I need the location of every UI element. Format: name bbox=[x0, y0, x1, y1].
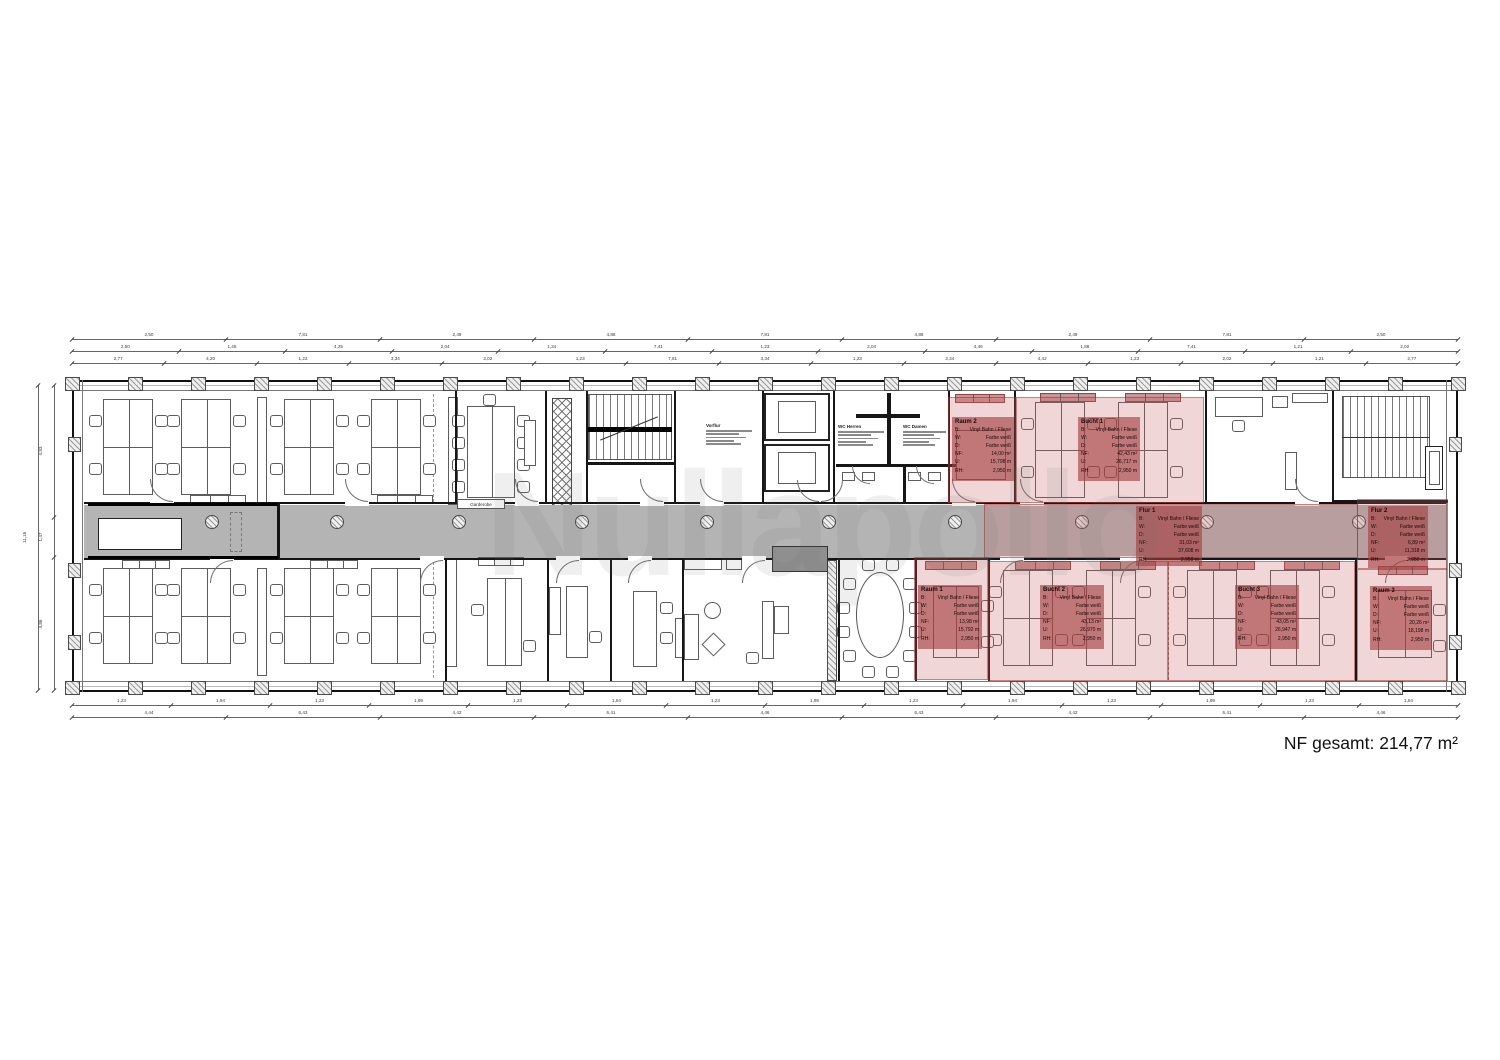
door-arc bbox=[420, 560, 443, 583]
chair bbox=[89, 584, 102, 596]
dim-value: 2,49 bbox=[996, 333, 1150, 339]
desk-divider bbox=[372, 447, 420, 448]
column-pier bbox=[695, 377, 710, 391]
chair bbox=[89, 415, 102, 427]
door-arc bbox=[640, 479, 663, 502]
zone-spec-row: NF:43,13 m² bbox=[1043, 620, 1101, 625]
corridor-column bbox=[452, 515, 466, 529]
column-pier bbox=[947, 377, 962, 391]
dim-value: 1,94 bbox=[567, 699, 666, 705]
column-pier bbox=[1449, 635, 1462, 650]
dim-value: 2,34 bbox=[904, 357, 996, 363]
shelf-divider bbox=[327, 561, 328, 568]
column-pier bbox=[821, 377, 836, 391]
zone-spec-row: U:26,717 m bbox=[1081, 460, 1137, 465]
column-pier bbox=[254, 681, 269, 695]
desk-divider bbox=[182, 616, 230, 617]
dim-value: 7,81 bbox=[1150, 333, 1304, 339]
door-arc bbox=[345, 479, 368, 502]
zone-spec-row: D:Farbe weiß bbox=[1238, 612, 1296, 617]
door-arc bbox=[797, 480, 819, 502]
wc-wall bbox=[903, 464, 906, 504]
zone-spec-row: U:15,798 m bbox=[955, 460, 1011, 465]
dim-value: 2,49 bbox=[380, 333, 534, 339]
dim-value: 4,42 bbox=[996, 357, 1088, 363]
column-pier bbox=[884, 681, 899, 695]
zone-spec-row: B:Vinyl Bahn / Fliese bbox=[1139, 517, 1199, 522]
zone-spec-row: U:37,608 m bbox=[1139, 549, 1199, 554]
zone-name: Raum 1 bbox=[921, 587, 979, 593]
chair bbox=[886, 666, 899, 678]
room-spec-bar bbox=[838, 434, 871, 436]
column-pier bbox=[1010, 681, 1025, 695]
door-arc bbox=[1295, 479, 1318, 502]
chair bbox=[167, 415, 180, 427]
desk bbox=[566, 586, 588, 658]
dim-value: 1,23 bbox=[72, 699, 171, 705]
interior-wall bbox=[547, 559, 549, 681]
column-pier bbox=[1073, 681, 1088, 695]
interior-wall bbox=[445, 559, 447, 681]
column-pier bbox=[632, 681, 647, 695]
zone-spec-row: W:Farbe weiß bbox=[1139, 525, 1199, 530]
room-spec-bar bbox=[903, 431, 946, 433]
dim-tick bbox=[52, 688, 57, 693]
room-spec-bar bbox=[706, 437, 746, 439]
zone-spec-row: RH:2,950 m bbox=[1371, 558, 1425, 563]
column-pier bbox=[68, 437, 81, 452]
zone-spec-row: D:Farbe weiß bbox=[1139, 533, 1199, 538]
dim-value: 7,41 bbox=[1138, 345, 1245, 351]
chair bbox=[1232, 420, 1245, 432]
column-pier bbox=[1199, 377, 1214, 391]
column-pier bbox=[506, 377, 521, 391]
dim-value: 4,83 bbox=[39, 446, 59, 456]
dim-value: 1,94 bbox=[1359, 699, 1458, 705]
column-pier bbox=[65, 377, 80, 391]
interior-wall bbox=[674, 391, 676, 503]
zone-spec-row: NF:43,05 m² bbox=[1238, 620, 1296, 625]
zone-name: Raum 3 bbox=[1373, 588, 1429, 594]
sideboard bbox=[310, 560, 358, 569]
column-pier bbox=[506, 681, 521, 695]
door-arc bbox=[150, 479, 173, 502]
dim-value: 3,34 bbox=[719, 357, 811, 363]
dim-value: 6,43 bbox=[842, 711, 996, 717]
dim-value: 1,46 bbox=[179, 345, 286, 351]
dim-line bbox=[72, 351, 1458, 352]
desk bbox=[1215, 397, 1263, 417]
dim-value: 2,04 bbox=[818, 345, 925, 351]
corridor-column bbox=[700, 515, 714, 529]
desk-divider bbox=[104, 616, 152, 617]
column-pier bbox=[758, 377, 773, 391]
zone-label-raum1: Raum 1B:Vinyl Bahn / FlieseW:Farbe weißD… bbox=[918, 585, 982, 649]
equipment-marker bbox=[230, 512, 242, 552]
dim-value: 6,43 bbox=[226, 711, 380, 717]
column-pier bbox=[128, 681, 143, 695]
chair bbox=[357, 415, 370, 427]
column-pier bbox=[254, 377, 269, 391]
interior-wall bbox=[586, 391, 588, 503]
tall-cabinet bbox=[552, 398, 572, 506]
zone-spec-row: B:Vinyl Bahn / Fliese bbox=[1373, 597, 1429, 602]
corridor-column bbox=[822, 515, 836, 529]
chair bbox=[336, 463, 349, 475]
armchair bbox=[701, 632, 725, 656]
dim-value: 4,42 bbox=[996, 711, 1150, 717]
shelf-divider bbox=[343, 561, 344, 568]
chair bbox=[336, 632, 349, 644]
dim-value: 1,88 bbox=[1032, 345, 1139, 351]
interior-wall bbox=[586, 462, 676, 465]
desk-divider bbox=[285, 447, 333, 448]
column-pier bbox=[1262, 377, 1277, 391]
room-label-wc_damen: WC Damen bbox=[903, 424, 953, 464]
desk bbox=[487, 578, 522, 666]
zone-spec-row: W:Farbe weiß bbox=[1043, 604, 1101, 609]
sideboard bbox=[122, 560, 170, 569]
zone-spec-row: U:26,947 m bbox=[1238, 628, 1296, 633]
cabinet bbox=[762, 601, 774, 659]
column-pier bbox=[1449, 437, 1462, 452]
dim-value: 7,81 bbox=[626, 357, 718, 363]
zone-spec-row: NF:42,43 m² bbox=[1081, 452, 1137, 457]
chair bbox=[167, 463, 180, 475]
corridor-column bbox=[205, 515, 219, 529]
room-spec-bar bbox=[838, 444, 873, 446]
chair bbox=[270, 584, 283, 596]
dim-value: 1,99 bbox=[1161, 699, 1260, 705]
column-pier bbox=[317, 377, 332, 391]
chair bbox=[89, 632, 102, 644]
zone-spec-row: W:Farbe weiß bbox=[1081, 436, 1137, 441]
virtual-divider bbox=[433, 394, 435, 502]
desk-cluster bbox=[284, 399, 334, 495]
room-spec-bar bbox=[706, 430, 752, 432]
corridor-column bbox=[575, 515, 589, 529]
dim-value: 4,20 bbox=[164, 357, 256, 363]
zone-name: Raum 2 bbox=[955, 419, 1011, 425]
zone-spec-row: RH:2,950 m bbox=[1139, 558, 1199, 563]
chair bbox=[270, 463, 283, 475]
column-pier bbox=[1136, 681, 1151, 695]
room-label-text: WC Herren bbox=[838, 424, 892, 429]
duct-block bbox=[772, 546, 828, 572]
chair bbox=[167, 584, 180, 596]
chair bbox=[167, 632, 180, 644]
door-arc bbox=[821, 480, 843, 502]
elevator-car bbox=[778, 401, 816, 433]
room-label-wc_herren: WC Herren bbox=[838, 424, 892, 464]
corridor-column bbox=[948, 515, 962, 529]
chair bbox=[452, 415, 465, 427]
garderobe-label: Garderobe bbox=[457, 499, 505, 509]
chair bbox=[589, 631, 602, 643]
dim-value: 1,21 bbox=[1245, 345, 1352, 351]
column-pier bbox=[1199, 681, 1214, 695]
zone-spec-row: W:Farbe weiß bbox=[1371, 525, 1425, 530]
chair bbox=[660, 632, 673, 644]
column-pier bbox=[1262, 681, 1277, 695]
room-spec-bar bbox=[706, 440, 734, 442]
desk-cluster bbox=[181, 399, 231, 495]
dim-value: 1,99 bbox=[765, 699, 864, 705]
chair bbox=[862, 666, 875, 678]
stair-rail bbox=[1342, 437, 1430, 438]
column-pier bbox=[443, 681, 458, 695]
dim-value: 2,02 bbox=[1181, 357, 1273, 363]
column-pier bbox=[68, 635, 81, 650]
chair bbox=[471, 604, 484, 616]
chair bbox=[843, 650, 856, 662]
cabinet bbox=[524, 420, 536, 466]
zone-spec-row: RH:2,950 m bbox=[955, 469, 1011, 474]
dim-value: 1,23 bbox=[1260, 699, 1359, 705]
chair bbox=[233, 632, 246, 644]
dim-value: 7,81 bbox=[688, 333, 842, 339]
dim-value: 1,94 bbox=[963, 699, 1062, 705]
zone-spec-row: U:11,318 m bbox=[1371, 549, 1425, 554]
zone-spec-row: RH:2,950 m bbox=[1373, 638, 1429, 643]
chair bbox=[357, 584, 370, 596]
column-pier bbox=[1451, 681, 1466, 695]
chair bbox=[452, 481, 465, 493]
chair bbox=[746, 652, 759, 664]
door-arc bbox=[210, 560, 233, 583]
coffee-table bbox=[704, 602, 721, 619]
wall-line bbox=[82, 380, 83, 692]
column-pier bbox=[1325, 377, 1340, 391]
zone-spec-row: NF:20,26 m² bbox=[1373, 621, 1429, 626]
dim-value: 7,81 bbox=[226, 333, 380, 339]
chair bbox=[233, 463, 246, 475]
dim-tick bbox=[36, 688, 41, 693]
column-pier bbox=[191, 681, 206, 695]
zone-label-flur1: Flur 1B:Vinyl Bahn / FlieseW:Farbe weißD… bbox=[1136, 506, 1202, 566]
column-pier bbox=[380, 681, 395, 695]
interior-wall bbox=[455, 391, 457, 503]
column-pier bbox=[1325, 681, 1340, 695]
dim-value: 4,88 bbox=[842, 333, 996, 339]
zone-spec-row: B:Vinyl Bahn / Fliese bbox=[1081, 428, 1137, 433]
copier-room-wall bbox=[277, 504, 280, 560]
column-pier bbox=[1010, 377, 1025, 391]
floorplan-canvas: Nullapollo 2,507,812,494,887,814,882,497… bbox=[0, 0, 1500, 1060]
room-spec-bar bbox=[706, 433, 739, 435]
desk-divider bbox=[372, 616, 420, 617]
zone-label-bucht3: Bucht 3B:Vinyl Bahn / FlieseW:Farbe weiß… bbox=[1235, 585, 1299, 649]
sofa bbox=[684, 614, 699, 660]
door-arc bbox=[742, 560, 765, 583]
column-pier bbox=[191, 377, 206, 391]
dim-value: 4,44 bbox=[72, 711, 226, 717]
dim-value: 2,77 bbox=[72, 357, 164, 363]
wall-shelf bbox=[1292, 393, 1328, 403]
chair bbox=[270, 632, 283, 644]
chair bbox=[886, 559, 899, 571]
dim-value: 1,23 bbox=[270, 699, 369, 705]
chair bbox=[423, 584, 436, 596]
column-pier bbox=[380, 377, 395, 391]
column-pier bbox=[884, 377, 899, 391]
desk-divider bbox=[104, 447, 152, 448]
column-pier bbox=[1136, 377, 1151, 391]
zone-spec-row: W:Farbe weiß bbox=[1238, 604, 1296, 609]
chair bbox=[862, 559, 875, 571]
dim-value: 1,23 bbox=[1062, 699, 1161, 705]
dim-value: 11,16 bbox=[23, 533, 43, 543]
column-pier bbox=[1388, 681, 1403, 695]
zone-spec-row: D:Farbe weiß bbox=[955, 444, 1011, 449]
dim-value: 4,86 bbox=[39, 619, 59, 629]
dim-value: 4,25 bbox=[285, 345, 392, 351]
dim-value: 4,46 bbox=[925, 345, 1032, 351]
shelf-divider bbox=[139, 561, 140, 568]
column-pier bbox=[128, 377, 143, 391]
column-pier bbox=[317, 681, 332, 695]
zone-spec-row: NF:6,89 m² bbox=[1371, 541, 1425, 546]
column-pier bbox=[1451, 377, 1466, 391]
room-spec-bar bbox=[838, 438, 878, 440]
desk-divider bbox=[182, 447, 230, 448]
desk-divider bbox=[285, 616, 333, 617]
room-spec-bar bbox=[903, 444, 935, 446]
room-spec-bar bbox=[903, 441, 929, 443]
chair bbox=[423, 463, 436, 475]
dim-value: 2,04 bbox=[392, 345, 499, 351]
dim-line bbox=[72, 339, 1458, 340]
zone-spec-row: B:Vinyl Bahn / Fliese bbox=[921, 596, 979, 601]
table-line bbox=[492, 407, 493, 497]
zone-name: Flur 2 bbox=[1371, 508, 1425, 514]
chair bbox=[452, 459, 465, 471]
copier-room-wall bbox=[88, 556, 278, 559]
zone-spec-row: D:Farbe weiß bbox=[1081, 444, 1137, 449]
zone-spec-row: D:Farbe weiß bbox=[1043, 612, 1101, 617]
dim-value: 2,50 bbox=[1304, 333, 1458, 339]
dim-line bbox=[72, 717, 1458, 718]
dim-value: 2,50 bbox=[72, 345, 179, 351]
zone-spec-row: D:Farbe weiß bbox=[921, 612, 979, 617]
dim-value: 1,34 bbox=[498, 345, 605, 351]
dim-value: 1,99 bbox=[369, 699, 468, 705]
cabinet bbox=[549, 587, 561, 635]
dim-value: 2,02 bbox=[442, 357, 534, 363]
zone-spec-row: NF:31,03 m² bbox=[1139, 541, 1199, 546]
zone-spec-row: RH:2,950 m bbox=[1081, 469, 1137, 474]
dim-value: 1,23 bbox=[864, 699, 963, 705]
dim-value: 4,42 bbox=[380, 711, 534, 717]
desk bbox=[633, 591, 657, 667]
dim-value: 3,34 bbox=[349, 357, 441, 363]
dim-value: 1,23 bbox=[811, 357, 903, 363]
dim-value: 2,02 bbox=[1351, 345, 1458, 351]
dim-value: 7,41 bbox=[605, 345, 712, 351]
dim-value: 1,94 bbox=[171, 699, 270, 705]
chair bbox=[523, 640, 536, 652]
zone-spec-row: W:Farbe weiß bbox=[921, 604, 979, 609]
chair bbox=[233, 584, 246, 596]
interior-wall bbox=[545, 391, 547, 503]
dim-value: 1,23 bbox=[1088, 357, 1180, 363]
dim-value: 1,21 bbox=[1273, 357, 1365, 363]
zone-name: Bucht 3 bbox=[1238, 587, 1296, 593]
zone-name: Flur 1 bbox=[1139, 508, 1199, 514]
zone-spec-row: B:Vinyl Bahn / Fliese bbox=[955, 428, 1011, 433]
zone-spec-row: U:18,198 m bbox=[1373, 629, 1429, 634]
copier bbox=[98, 518, 182, 550]
chair bbox=[660, 602, 673, 614]
column-pier bbox=[695, 681, 710, 695]
column-pier bbox=[947, 681, 962, 695]
dim-value: 2,77 bbox=[1366, 357, 1458, 363]
zone-spec-row: B:Vinyl Bahn / Fliese bbox=[1043, 596, 1101, 601]
zone-label-raum3: Raum 3B:Vinyl Bahn / FlieseW:Farbe weißD… bbox=[1370, 586, 1432, 650]
chair bbox=[233, 415, 246, 427]
column-pier bbox=[569, 681, 584, 695]
zone-label-raum2: Raum 2B:Vinyl Bahn / FlieseW:Farbe weißD… bbox=[952, 417, 1014, 481]
platform-lift-inner bbox=[1429, 451, 1440, 485]
dim-value: 1,23 bbox=[666, 699, 765, 705]
column-pier bbox=[569, 377, 584, 391]
chair bbox=[843, 578, 856, 590]
desk-cluster bbox=[284, 568, 334, 664]
chair bbox=[357, 463, 370, 475]
door-arc bbox=[556, 560, 579, 583]
corridor-column bbox=[330, 515, 344, 529]
zone-spec-row: D:Farbe weiß bbox=[1371, 533, 1425, 538]
dim-value: 2,50 bbox=[72, 333, 226, 339]
dim-value: 4,46 bbox=[1304, 711, 1458, 717]
dim-value: 4,46 bbox=[688, 711, 842, 717]
chair bbox=[452, 437, 465, 449]
room-spec-bar bbox=[706, 443, 741, 445]
column-pier bbox=[1388, 377, 1403, 391]
shaft-wall bbox=[827, 560, 837, 681]
zone-spec-row: U:15,792 m bbox=[921, 628, 979, 633]
dim-line bbox=[72, 363, 1458, 364]
chair bbox=[270, 415, 283, 427]
room-spec-bar bbox=[903, 434, 934, 436]
zone-spec-row: B:Vinyl Bahn / Fliese bbox=[1238, 596, 1296, 601]
column-pier bbox=[65, 681, 80, 695]
column-pier bbox=[443, 377, 458, 391]
interior-wall bbox=[1205, 391, 1207, 503]
column-pier bbox=[758, 681, 773, 695]
zone-label-flur2: Flur 2B:Vinyl Bahn / FlieseW:Farbe weißD… bbox=[1368, 506, 1428, 568]
desk-cluster bbox=[371, 568, 421, 664]
door-arc bbox=[700, 479, 723, 502]
dim-value: 1,23 bbox=[468, 699, 567, 705]
meeting-table bbox=[467, 406, 515, 498]
dim-value: 1,23 bbox=[534, 357, 626, 363]
desk-cluster bbox=[371, 399, 421, 495]
dim-value: 6,41 bbox=[534, 711, 688, 717]
zone-spec-row: RH:2,950 m bbox=[921, 637, 979, 642]
zone-spec-row: RH:2,950 m bbox=[1238, 637, 1296, 642]
shelf-divider bbox=[155, 561, 156, 568]
room-label-vorflur: Vorflur bbox=[706, 423, 760, 463]
room-spec-bar bbox=[838, 431, 884, 433]
column-pier bbox=[1449, 563, 1462, 578]
zone-spec-row: W:Farbe weiß bbox=[955, 436, 1011, 441]
interior-wall bbox=[838, 559, 840, 681]
interior-wall bbox=[1332, 391, 1334, 503]
dim-value: 1,23 bbox=[257, 357, 349, 363]
interior-wall bbox=[610, 559, 612, 681]
room-spec-bar bbox=[838, 441, 866, 443]
